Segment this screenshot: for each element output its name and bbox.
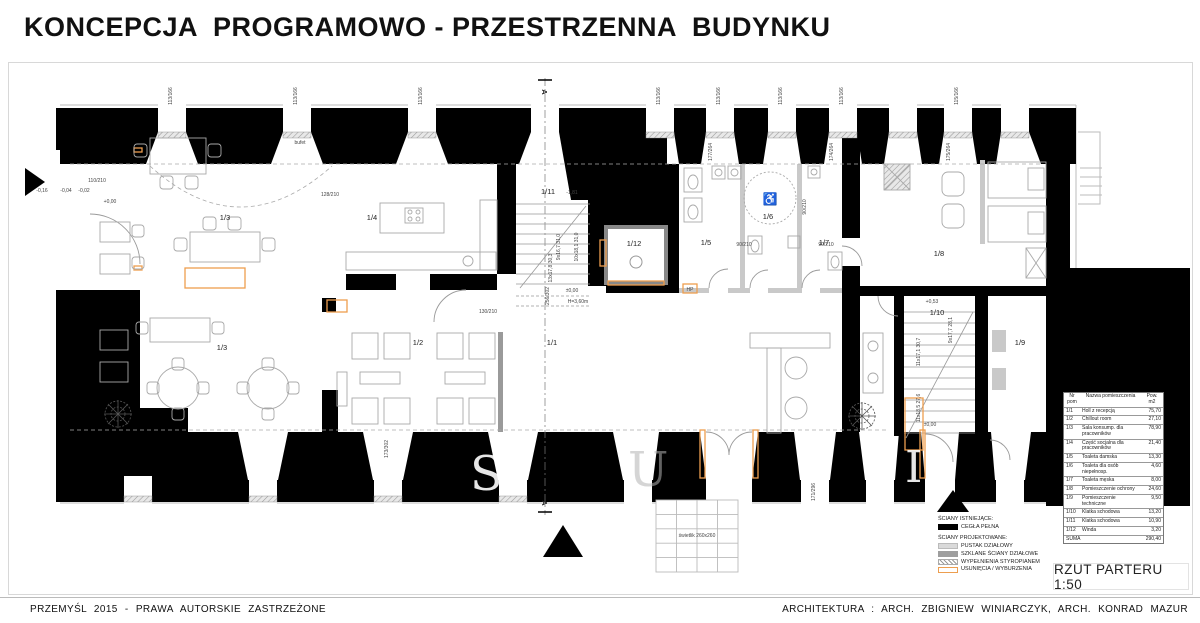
room-label: 1/8 [934,249,944,258]
dim-label: 11x17,1 30,7 [916,338,922,367]
room-label: 1/1 [547,338,557,347]
table-total-row: SUMA 290,40 [1064,535,1163,543]
cell-name: Holl z recepcją [1080,407,1141,416]
legend-item-label: SZKLANE ŚCIANY DZIAŁOWE [961,551,1038,557]
cell-name: Sala konsump. dla pracowników [1080,425,1141,440]
swatch-styrofoam-icon [938,559,958,565]
cell-area: 10,90 [1141,518,1163,527]
dim-label: ±0,00 [924,422,937,428]
footer: PRZEMYŚL 2015 - PRAWA AUTORSKIE ZASTRZEŻ… [0,597,1200,623]
dim-label: 113/166 [656,87,662,105]
swatch-brick-icon [938,524,958,530]
legend-item: WYPEŁNIENIA STYROPIANEM [938,559,1053,565]
dim-label: 90/210 [736,242,752,248]
legend-item-label: PUSTAK DZIAŁOWY [961,543,1013,549]
room-label: 1/6 [763,212,773,221]
cell-name: Pomieszczenie ochrony [1080,486,1141,495]
dim-label: 256/302 [545,287,551,305]
section-arrow-bottom [543,525,583,557]
cell-nr: 1/5 [1064,454,1080,463]
cell-nr: 1/1 [1064,407,1080,416]
table-row: 1/4Część socjalna dla pracowników21,40 [1064,439,1163,454]
walls-existing [56,108,1190,506]
room-label: 1/9 [1015,338,1025,347]
dim-label: -0,04 [60,188,72,194]
table-row: 1/6Toaleta dla osób niepełnosp.4,60 [1064,462,1163,477]
cell-name: Klatka schodowa [1080,518,1141,527]
dim-label: 175/264 [946,143,952,161]
cell-nr: 1/4 [1064,439,1080,454]
dim-label: 113/166 [716,87,722,105]
dim-label: 113/166 [293,87,299,105]
footer-right: ARCHITEKTURA : ARCH. ZBIGNIEW WINIARCZYK… [782,604,1188,615]
scale-label: RZUT PARTERU 1:50 [1053,563,1189,590]
dim-label: 90/210 [802,199,808,215]
dim-label: -0,02 [78,188,90,194]
cell-area: 75,70 [1141,407,1163,416]
cell-area: 27,10 [1141,416,1163,425]
footer-left: PRZEMYŚL 2015 - PRAWA AUTORSKIE ZASTRZEŻ… [30,604,326,615]
legend-item: SZKLANE ŚCIANY DZIAŁOWE [938,551,1053,557]
legend-existing-title: ŚCIANY ISTNIEJĄCE: [938,516,1053,522]
cell-name: Toaleta dla osób niepełnosp. [1080,462,1141,477]
stair-1-10 [904,312,975,438]
dim-label: 113/166 [168,87,174,105]
dim-label: 173/302 [384,440,390,458]
dim-label: 110/210 [88,178,106,184]
legend-item-label: USUNIĘCIA / WYBURZENIA [961,566,1032,572]
cell-area: 13,30 [1141,454,1163,463]
dim-label: +0,00 [104,199,117,205]
dim-label: -1,81 [566,190,578,196]
dim-label: 113/166 [418,87,424,105]
cell-name: Klatka schodowa [1080,509,1141,518]
cell-nr: 1/12 [1064,526,1080,535]
cell-area: 4,60 [1141,462,1163,477]
cell-nr: 1/8 [1064,486,1080,495]
header-area: Pow. m2 [1141,393,1163,407]
dim-label: 90/210 [818,242,834,248]
room-label: 1/12 [627,239,642,248]
legend-item-label: CEGŁA PEŁNA [961,524,999,530]
dim-label: 9x17,7 28,1 [948,317,954,343]
legend-item: USUNIĘCIA / WYBURZENIA [938,566,1053,572]
swatch-block-icon [938,543,958,549]
total-label: SUMA [1064,535,1141,543]
room-schedule-table: Nr pom Nazwa pomieszczenia Pow. m2 1/1Ho… [1063,392,1164,544]
dim-label: ±0,00 [566,288,579,294]
table-header-row: Nr pom Nazwa pomieszczenia Pow. m2 [1064,393,1163,407]
legend-item-label: WYPEŁNIENIA STYROPIANEM [961,559,1040,565]
cell-nr: 1/6 [1064,462,1080,477]
legend-item: CEGŁA PEŁNA [938,524,1053,530]
dim-label: 13x17,8 30,3 [548,253,554,282]
demolition-marks [134,148,925,478]
dim-label: świetlik 260x260 [679,533,716,539]
cell-name: Chillout room [1080,416,1141,425]
cell-area: 3,20 [1141,526,1163,535]
svg-text:A: A [540,89,549,95]
dim-label: 11x18,5 27,6 [916,394,922,423]
dim-label: H=3,60m [568,299,588,305]
dim-label: 177/264 [708,143,714,161]
room-label: 1/5 [701,238,711,247]
dim-label: 10x18,1 31,0 [574,232,580,261]
dim-label: 113/166 [839,87,845,105]
dim-label: 9x16,7 31,0 [556,234,562,260]
legend-projected-title: ŚCIANY PROJEKTOWANE: [938,535,1053,541]
room-label: 1/2 [413,338,423,347]
dim-label: bufet [294,140,306,146]
wall-legend: ŚCIANY ISTNIEJĄCE: CEGŁA PEŁNA ŚCIANY PR… [938,514,1053,574]
room-label: 1/4 [367,213,377,222]
plant [104,400,132,428]
cell-area: 24,60 [1141,486,1163,495]
cell-area: 21,40 [1141,439,1163,454]
svg-text:A: A [540,500,549,506]
cell-area: 9,50 [1141,494,1163,509]
cell-nr: 1/2 [1064,416,1080,425]
table-row: 1/11Klatka schodowa10,90 [1064,518,1163,527]
cell-nr: 1/3 [1064,425,1080,440]
header-name: Nazwa pomieszczenia [1080,393,1141,407]
cell-name: Toaleta męska [1080,477,1141,486]
legend-item: PUSTAK DZIAŁOWY [938,543,1053,549]
swatch-glass-icon [938,551,958,557]
wheelchair-icon: ♿ [763,192,778,206]
total-area: 290,40 [1141,535,1163,543]
cell-name: Toaleta damska [1080,454,1141,463]
room-label: 1/10 [930,308,945,317]
cell-nr: 1/9 [1064,494,1080,509]
table-row: 1/3Sala konsump. dla pracowników78,90 [1064,425,1163,440]
table-row: 1/8Pomieszczenie ochrony24,60 [1064,486,1163,495]
cell-area: 13,20 [1141,509,1163,518]
table-row: 1/12Winda3,20 [1064,526,1163,535]
cell-area: 8,00 [1141,477,1163,486]
cell-nr: 1/11 [1064,518,1080,527]
room-label: 1/11 [541,187,555,196]
dim-label: +0,53 [926,299,939,305]
room-label: 1/3 [220,213,230,222]
table-row: 1/2Chillout room27,10 [1064,416,1163,425]
cell-name: Winda [1080,526,1141,535]
cell-name: Część socjalna dla pracowników [1080,439,1141,454]
dim-label: 113/166 [778,87,784,105]
glass-partition [498,332,503,432]
dim-label: 171/296 [811,483,817,501]
table-row: 1/7Toaleta męska8,00 [1064,477,1163,486]
cell-nr: 1/10 [1064,509,1080,518]
header-nr: Nr pom [1064,393,1080,407]
dim-label: 128/210 [321,192,339,198]
plant [848,402,876,430]
swatch-demolition-icon [938,567,958,573]
cell-area: 78,90 [1141,425,1163,440]
dim-label: 174/264 [829,143,835,161]
dim-label: 130/210 [479,309,497,315]
table-row: 1/1Holl z recepcją75,70 [1064,407,1163,416]
watermark-letter: U [628,442,668,498]
dim-label: -0,16 [36,188,48,194]
dim-label: HP [687,287,695,293]
room-label: 1/3 [217,343,227,352]
table-row: 1/10Klatka schodowa13,20 [1064,509,1163,518]
dim-label: 115/166 [954,87,960,105]
watermark-letter: S [470,446,503,502]
watermark-letter: I [905,442,922,493]
table-row: 1/5Toaleta damska13,30 [1064,454,1163,463]
cell-nr: 1/7 [1064,477,1080,486]
elevator-shaft [606,227,666,283]
table-row: 1/9Pomieszczenie techniczne9,50 [1064,494,1163,509]
cell-name: Pomieszczenie techniczne [1080,494,1141,509]
